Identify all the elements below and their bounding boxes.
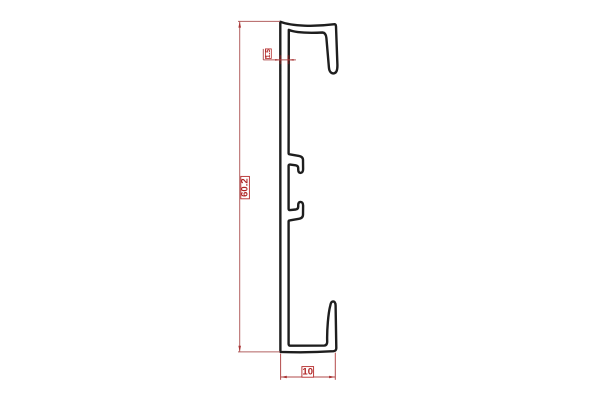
svg-text:1.5: 1.5 bbox=[265, 49, 272, 58]
svg-text:10: 10 bbox=[302, 366, 313, 377]
svg-text:60.2: 60.2 bbox=[240, 178, 251, 197]
